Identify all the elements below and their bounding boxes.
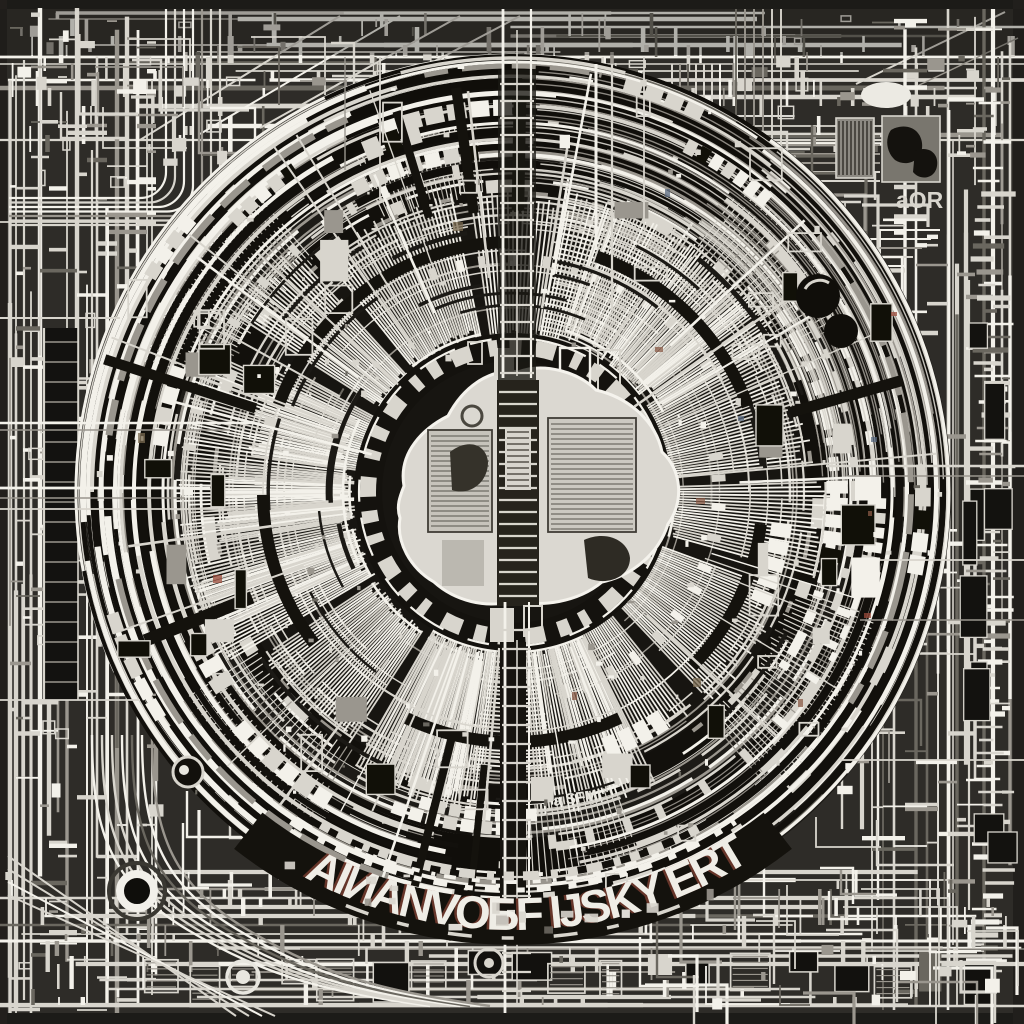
svg-text:aOR: aOR: [896, 187, 944, 213]
